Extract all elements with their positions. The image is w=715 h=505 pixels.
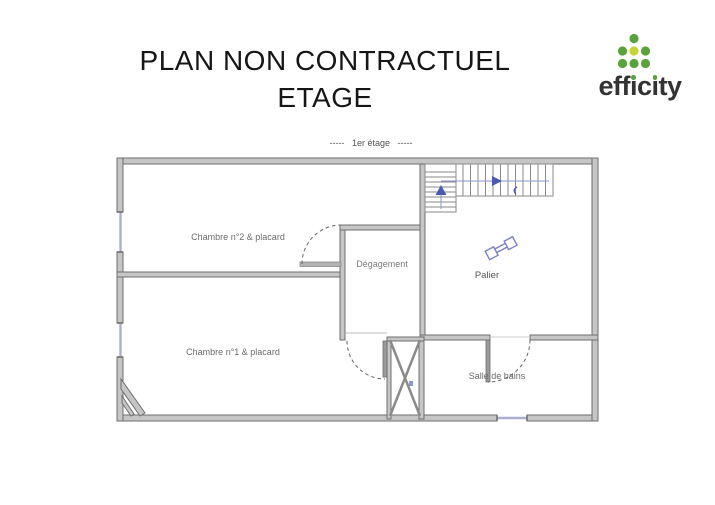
door-leaf-chambre2 — [300, 262, 341, 267]
room-labels: Chambre n°2 & placard Dégagement Palier … — [186, 232, 526, 381]
walls — [117, 158, 598, 421]
door-leaf-chambre1 — [383, 341, 387, 377]
shaft-wall-left — [387, 337, 391, 419]
room-label-sdb: Salle de bains — [469, 371, 526, 381]
door-arc-chambre1 — [347, 341, 385, 379]
wall-degagement-top — [340, 225, 425, 230]
floor-plan: ----- 1er étage ----- — [0, 0, 715, 505]
room-label-palier: Palier — [475, 270, 499, 281]
shaft-x-hatch — [390, 340, 420, 416]
stairs — [425, 164, 553, 212]
wall-outer-top — [117, 158, 598, 164]
wall-outer-left-2 — [117, 252, 123, 323]
wall-between-chambres — [117, 272, 345, 277]
floor-label-dashes: ----- — [395, 138, 413, 148]
windows — [117, 212, 527, 421]
room-label-chambre2: Chambre n°2 & placard — [191, 232, 285, 242]
shaft-wall-right — [419, 337, 424, 419]
wall-outer-bottom-left — [117, 415, 497, 421]
wall-outer-left-1 — [117, 158, 123, 212]
corner-chimney-wall — [121, 379, 145, 416]
floor-label: ----- 1er étage ----- — [329, 138, 412, 148]
shaft-wall-top — [387, 337, 424, 341]
wall-sdb-top-left — [420, 335, 490, 340]
room-label-chambre1: Chambre n°1 & placard — [186, 347, 280, 357]
wall-sdb-top-right — [530, 335, 598, 340]
wall-outer-bottom-right — [527, 415, 598, 421]
wall-degagement-left — [340, 225, 345, 340]
shaft-blue-mark — [409, 381, 413, 386]
wall-outer-right — [592, 158, 598, 421]
floor-label-dashes: ----- — [329, 138, 347, 148]
floor-label-text: 1er étage — [352, 138, 390, 148]
room-label-degagement: Dégagement — [356, 259, 408, 269]
wall-palier-left — [420, 164, 425, 340]
door-arc-chambre2 — [302, 225, 341, 264]
palier-object-icon — [485, 237, 517, 260]
